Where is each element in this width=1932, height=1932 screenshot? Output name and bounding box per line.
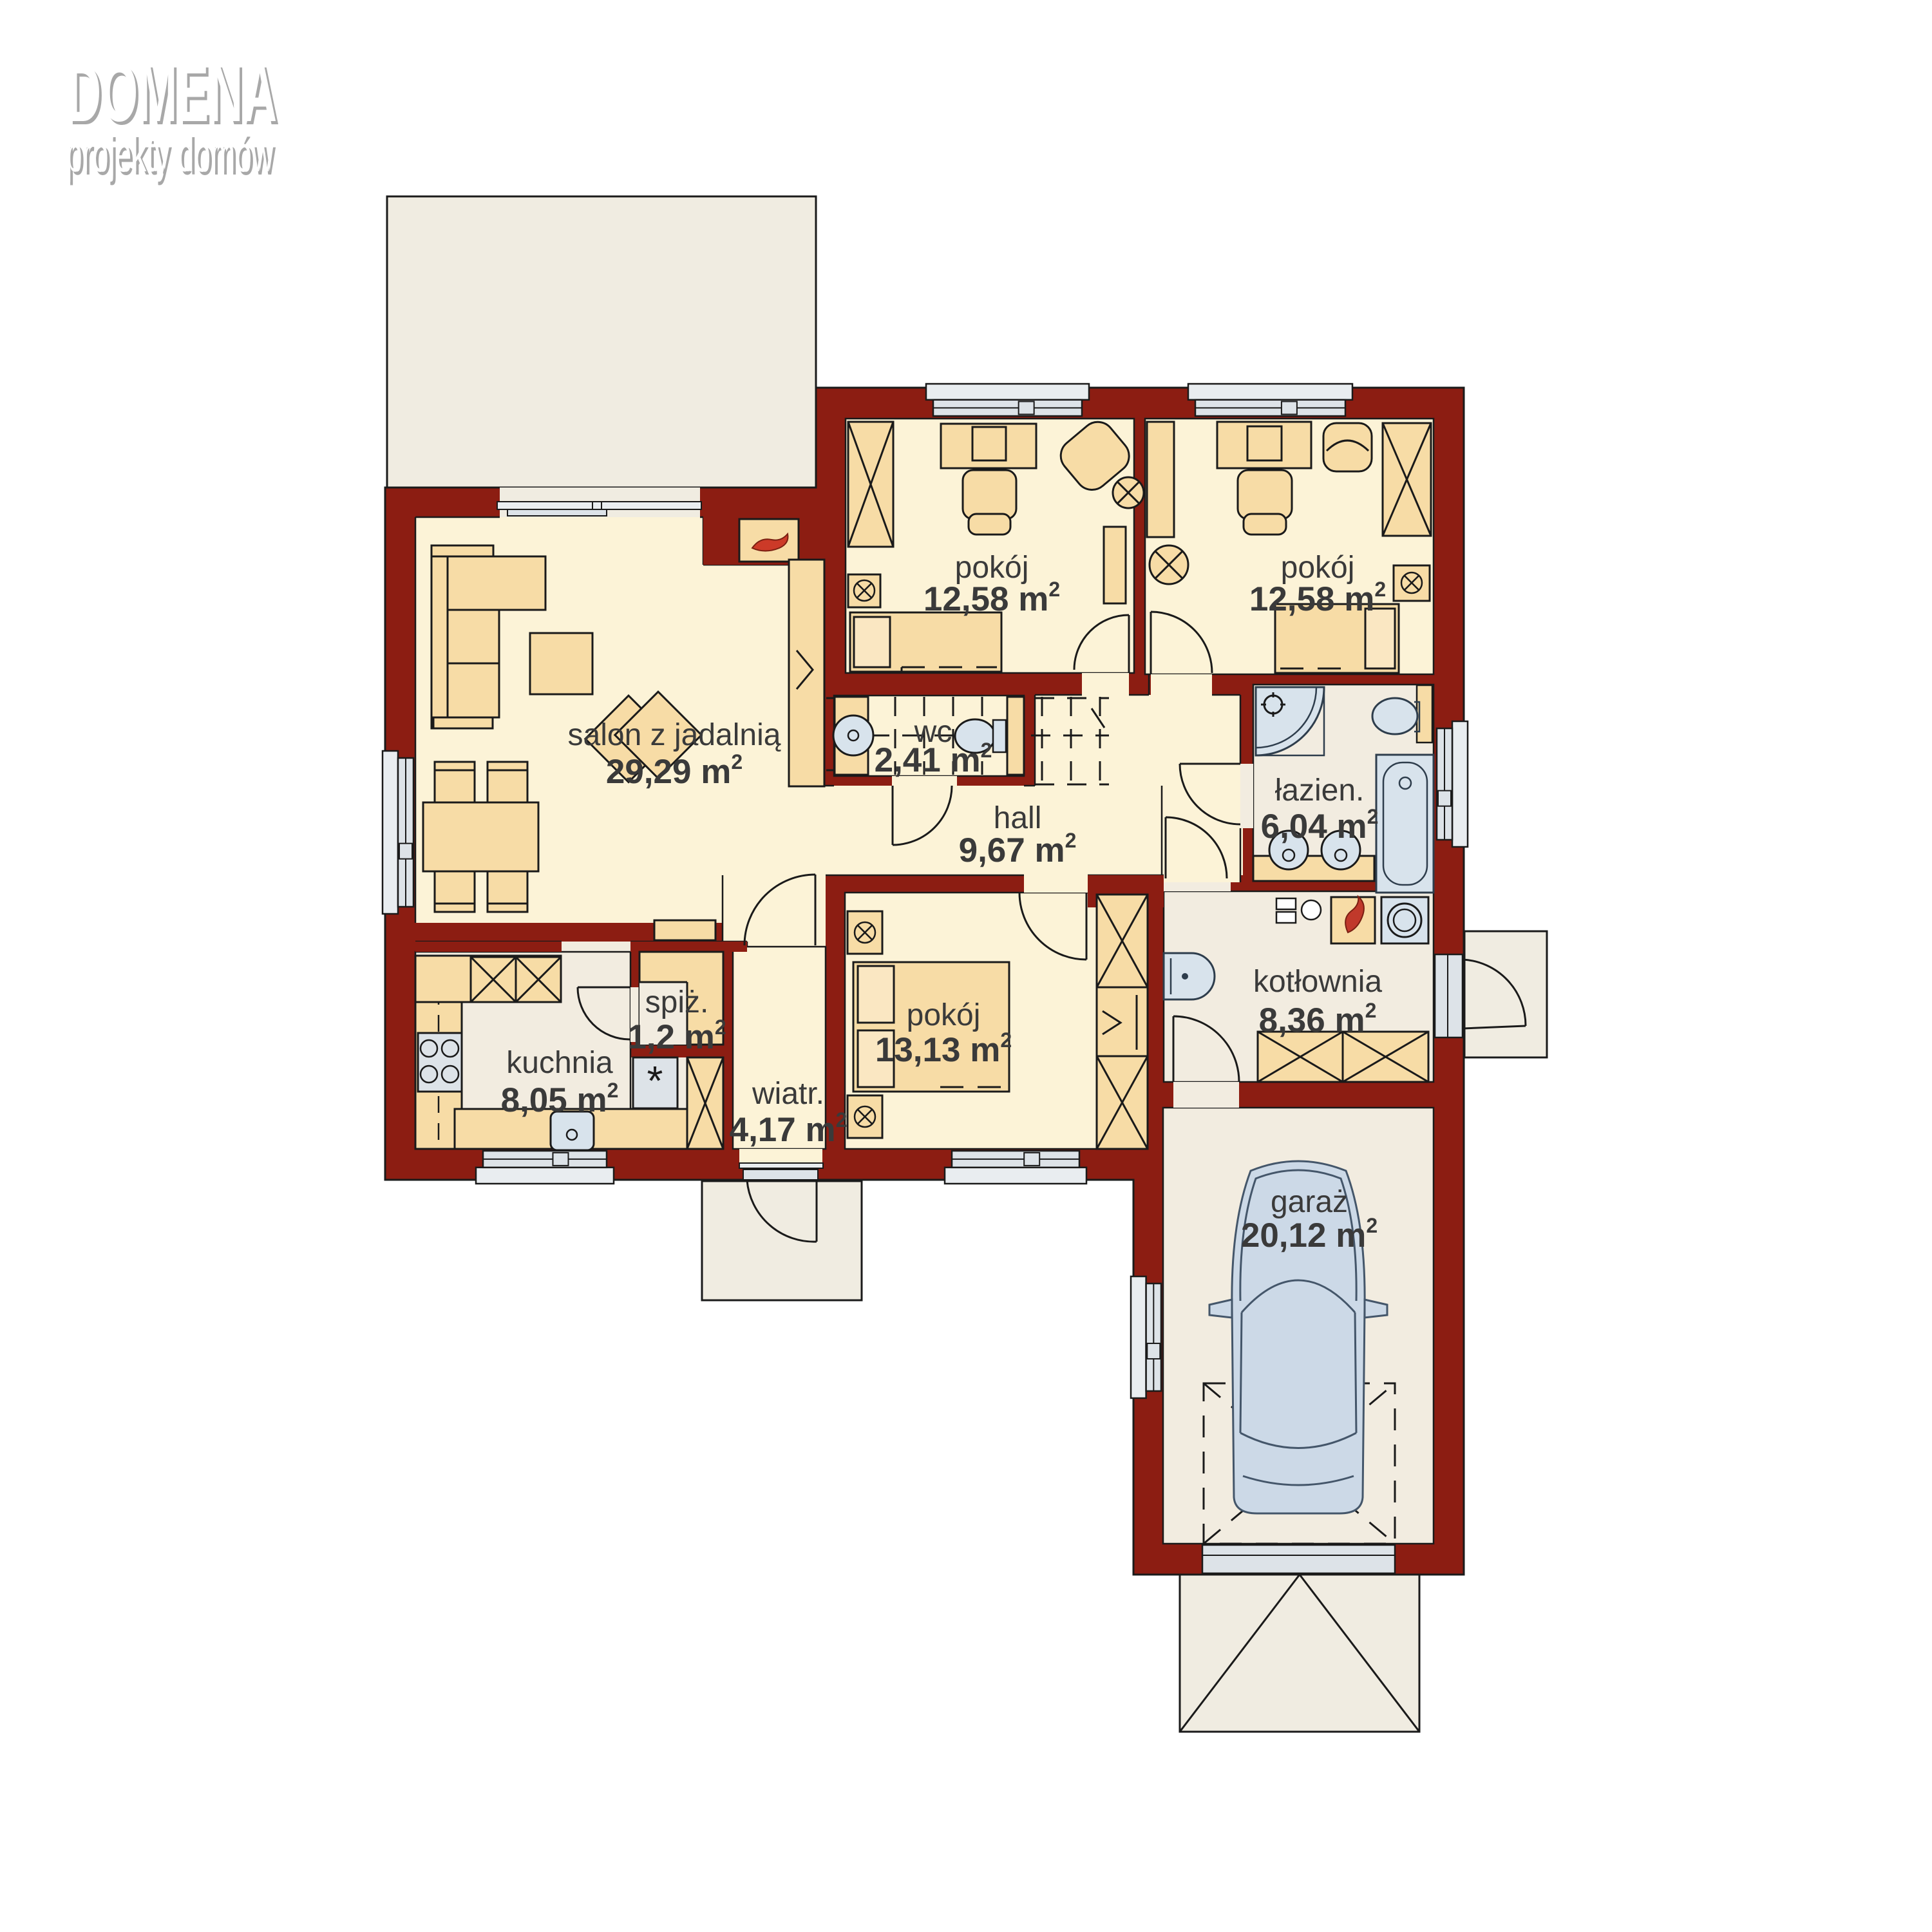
svg-text:wiatr.: wiatr. bbox=[752, 1077, 824, 1111]
svg-text:29,29 m2: 29,29 m2 bbox=[606, 750, 743, 791]
svg-text:łazien.: łazien. bbox=[1275, 773, 1365, 808]
svg-text:kotłownia: kotłownia bbox=[1253, 965, 1382, 999]
svg-text:4,17 m2: 4,17 m2 bbox=[730, 1108, 848, 1149]
svg-text:hall: hall bbox=[994, 801, 1042, 835]
svg-text:kuchnia: kuchnia bbox=[506, 1046, 613, 1080]
svg-text:9,67 m2: 9,67 m2 bbox=[959, 829, 1077, 869]
svg-text:spiż.: spiż. bbox=[645, 985, 709, 1019]
svg-text:6,04 m2: 6,04 m2 bbox=[1261, 805, 1379, 846]
svg-text:garaż: garaż bbox=[1271, 1185, 1348, 1219]
svg-text:projekty domów: projekty domów bbox=[66, 125, 273, 182]
svg-text:20,12 m2: 20,12 m2 bbox=[1241, 1214, 1378, 1255]
svg-text:8,05 m2: 8,05 m2 bbox=[501, 1079, 619, 1119]
svg-text:8,36 m2: 8,36 m2 bbox=[1259, 999, 1377, 1039]
svg-text:12,58 m2: 12,58 m2 bbox=[923, 578, 1060, 618]
svg-text:1,2 m2: 1,2 m2 bbox=[627, 1016, 726, 1056]
svg-text:2,41 m2: 2,41 m2 bbox=[875, 739, 992, 779]
svg-text:13,13 m2: 13,13 m2 bbox=[875, 1028, 1012, 1069]
svg-text:12,58 m2: 12,58 m2 bbox=[1249, 578, 1386, 618]
svg-text:pokój: pokój bbox=[907, 998, 981, 1032]
svg-text:salon z jadalnią: salon z jadalnią bbox=[568, 718, 781, 752]
svg-text:*: * bbox=[647, 1057, 663, 1104]
